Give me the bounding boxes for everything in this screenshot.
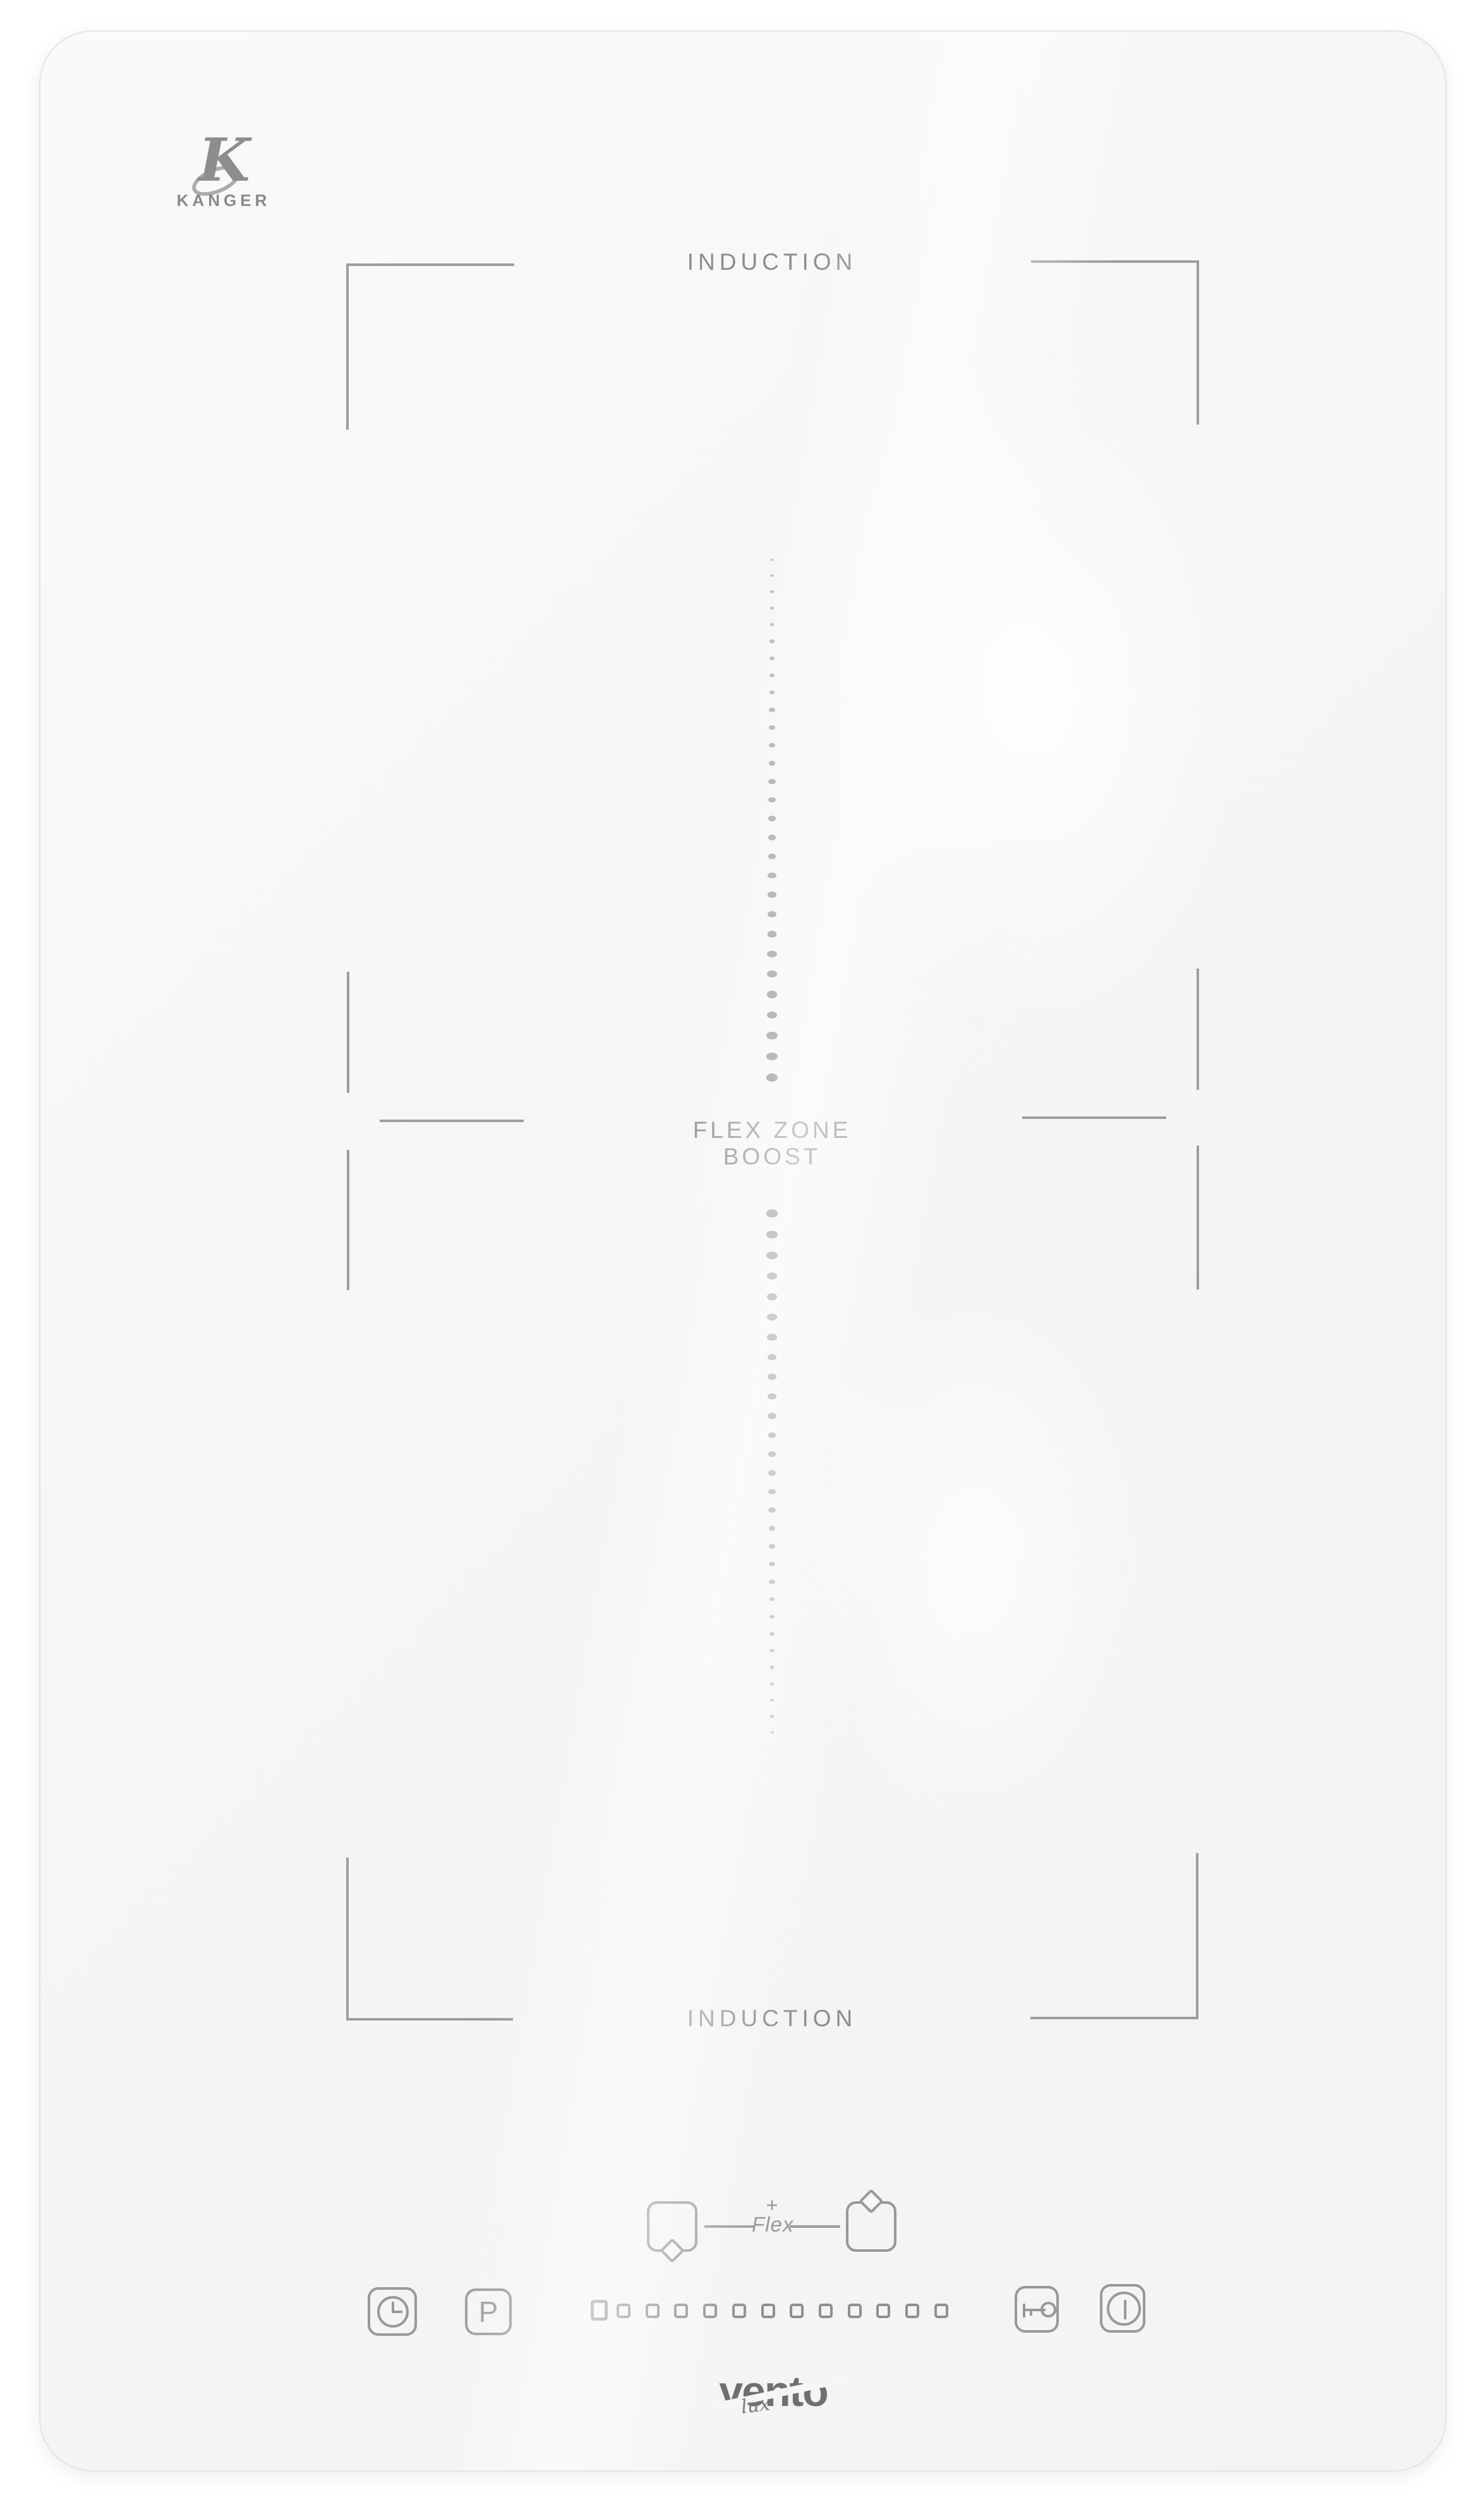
- level-square[interactable]: [819, 2304, 833, 2318]
- guide-dot: [768, 873, 776, 878]
- level-square[interactable]: [848, 2304, 862, 2318]
- guide-dot: [767, 991, 777, 998]
- flex-zone-label: FLEX ZONE: [646, 1117, 898, 1144]
- diamond-icon: [660, 2238, 685, 2263]
- guide-dot: [767, 1293, 777, 1300]
- guide-dot: [769, 1615, 775, 1619]
- boost-p-button[interactable]: P: [465, 2288, 512, 2335]
- guide-dot: [769, 1649, 774, 1653]
- guide-dot: [766, 1209, 778, 1218]
- zone-bottom-left-bracket-h: [346, 2018, 513, 2021]
- flex-dotted-guide-upper: [756, 559, 788, 1082]
- guide-dot: [767, 1012, 778, 1019]
- zone-top-left-bracket-v: [346, 263, 349, 430]
- guide-dot: [768, 1451, 776, 1457]
- guide-dot: [768, 891, 776, 898]
- guide-dot: [768, 854, 776, 859]
- guide-dot: [769, 743, 775, 747]
- guide-dot: [768, 779, 775, 784]
- child-lock-button[interactable]: [1015, 2286, 1059, 2333]
- zone-bottom-left-bracket-v: [346, 1858, 349, 2021]
- guide-dot: [770, 1715, 773, 1717]
- guide-dot: [767, 1314, 777, 1320]
- level-square[interactable]: [732, 2304, 746, 2318]
- guide-dot: [768, 1413, 776, 1418]
- guide-dot: [768, 1354, 777, 1360]
- guide-dot: [766, 1231, 778, 1238]
- guide-dot: [768, 1393, 776, 1399]
- guide-dot: [768, 911, 776, 917]
- level-square[interactable]: [761, 2304, 775, 2318]
- guide-dot: [766, 1073, 778, 1082]
- guide-dot: [766, 1252, 777, 1259]
- zone-mid-right-marker-v1: [1197, 969, 1199, 1090]
- guide-dot: [768, 816, 776, 821]
- guide-dot: [770, 574, 773, 577]
- kanger-wordmark: KANGER: [167, 191, 281, 210]
- power-button[interactable]: [1100, 2284, 1145, 2333]
- guide-dot: [770, 590, 774, 593]
- guide-dot: [771, 1731, 774, 1734]
- diamond-icon: [859, 2189, 884, 2214]
- ventolux-logo: vento lux: [682, 2367, 865, 2427]
- guide-dot: [770, 623, 775, 626]
- key-icon: [1023, 2301, 1054, 2323]
- boost-label: BOOST: [646, 1144, 898, 1170]
- zone-bottom-right-bracket-h: [1030, 2017, 1198, 2019]
- guide-dot: [766, 1032, 777, 1039]
- zone-mid-right-marker-h: [1022, 1116, 1166, 1119]
- cooktop-glass-panel: K KANGER INDUCTION FLEX ZONE BOOST INDUC…: [39, 30, 1447, 2472]
- guide-dot: [769, 639, 774, 643]
- guide-dot: [769, 725, 775, 730]
- level-square[interactable]: [790, 2304, 804, 2318]
- zone-top-right-bracket-h: [1031, 260, 1199, 263]
- guide-dot: [769, 708, 775, 712]
- guide-dot: [769, 1580, 775, 1584]
- guide-dot: [770, 607, 774, 610]
- guide-dot: [770, 1683, 774, 1686]
- guide-dot: [771, 559, 774, 561]
- p-label: P: [468, 2291, 509, 2333]
- guide-dot: [767, 951, 776, 958]
- guide-dot: [768, 1432, 776, 1438]
- zone-bottom-label: INDUCTION: [646, 2005, 898, 2032]
- guide-dot: [769, 1597, 775, 1601]
- guide-dot: [769, 1562, 775, 1566]
- level-square-large[interactable]: [591, 2300, 608, 2321]
- flex-dotted-guide-lower: [756, 1209, 788, 1734]
- level-square[interactable]: [674, 2304, 688, 2318]
- guide-dot: [768, 797, 776, 802]
- guide-dot: [769, 1544, 775, 1549]
- flex-bridge-label: + Flex: [752, 2196, 792, 2235]
- guide-dot: [767, 1272, 778, 1280]
- kanger-k-icon: K: [198, 129, 250, 192]
- flex-left-zone-button[interactable]: [647, 2201, 697, 2252]
- guide-dot: [768, 835, 776, 840]
- guide-dot: [769, 761, 776, 766]
- level-square[interactable]: [703, 2304, 717, 2318]
- guide-dot: [769, 691, 775, 694]
- guide-dot: [767, 1334, 776, 1341]
- guide-dot: [768, 1489, 776, 1494]
- flex-bridge-line-right: [790, 2225, 840, 2228]
- level-square[interactable]: [934, 2304, 948, 2318]
- guide-dot: [768, 1508, 775, 1513]
- zone-mid-left-marker-v1: [347, 972, 349, 1093]
- zone-mid-right-marker-v2: [1197, 1145, 1199, 1290]
- flex-bridge-line-left: [704, 2225, 755, 2228]
- level-square[interactable]: [617, 2304, 630, 2318]
- zone-top-right-bracket-v: [1197, 260, 1199, 425]
- glass-reflection: [40, 32, 1445, 2470]
- zone-top-label: INDUCTION: [646, 249, 898, 275]
- clock-icon: [377, 2296, 409, 2328]
- timer-button[interactable]: [368, 2287, 417, 2336]
- guide-dot: [768, 931, 777, 937]
- cooktop-product-photo: K KANGER INDUCTION FLEX ZONE BOOST INDUC…: [0, 0, 1484, 2502]
- guide-dot: [769, 656, 775, 660]
- guide-dot: [768, 1374, 776, 1380]
- zone-bottom-right-bracket-v: [1196, 1853, 1198, 2019]
- guide-dot: [770, 1699, 774, 1702]
- guide-dot: [770, 1665, 775, 1669]
- level-square[interactable]: [646, 2304, 660, 2318]
- guide-dot: [768, 1470, 776, 1476]
- zone-top-left-bracket-h: [346, 263, 514, 266]
- flex-right-zone-button[interactable]: [846, 2201, 896, 2252]
- level-square[interactable]: [905, 2304, 919, 2318]
- guide-dot: [767, 970, 777, 977]
- zone-mid-left-marker-v2: [347, 1150, 349, 1290]
- guide-dot: [769, 1632, 775, 1636]
- level-square[interactable]: [876, 2304, 890, 2318]
- power-icon: [1107, 2292, 1141, 2326]
- power-level-strip[interactable]: [582, 2297, 962, 2325]
- guide-dot: [766, 1053, 778, 1060]
- lux-script: lux: [740, 2393, 771, 2418]
- plus-icon: +: [752, 2196, 792, 2214]
- guide-dot: [769, 674, 775, 677]
- zone-mid-left-marker-h: [380, 1120, 524, 1122]
- kanger-logo: K KANGER: [167, 138, 281, 215]
- guide-dot: [769, 1526, 776, 1531]
